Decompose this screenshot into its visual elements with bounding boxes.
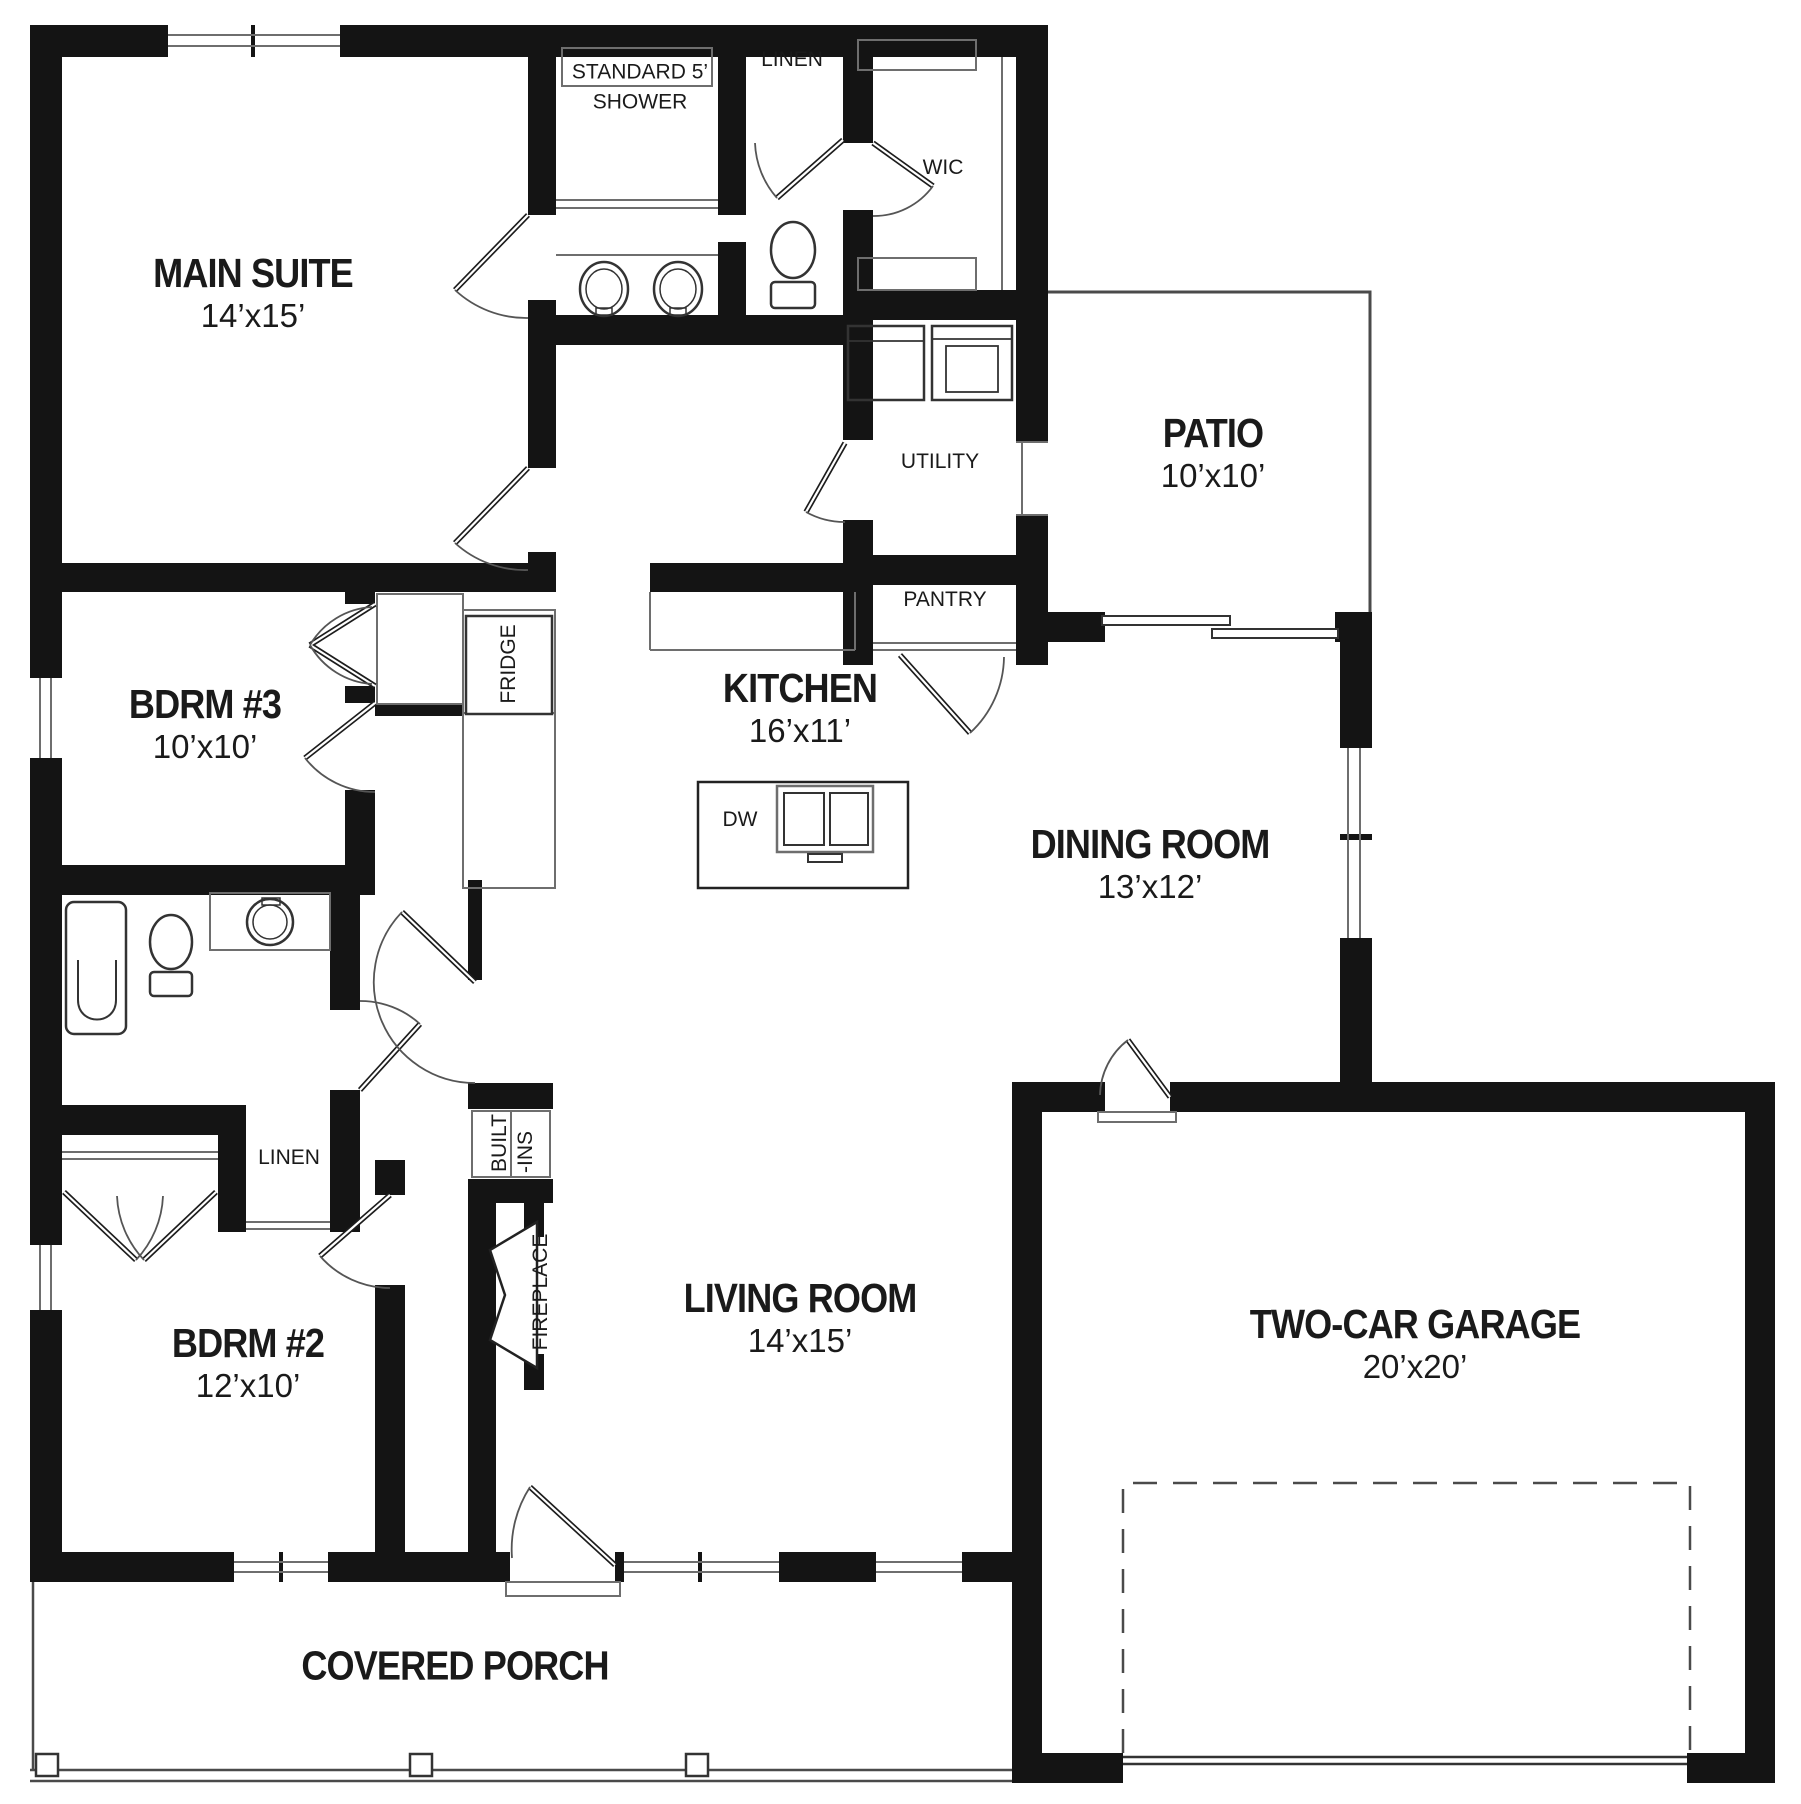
- garage-door-dashed-track: [1123, 1483, 1690, 1753]
- room-title: BDRM #3: [119, 683, 292, 726]
- room-label-garage: TWO-CAR GARAGE 20’x20’: [1227, 1303, 1602, 1389]
- room-label-patio: PATIO 10’x10’: [1156, 412, 1270, 498]
- label-utility: UTILITY: [901, 450, 979, 474]
- room-label-bdrm2: BDRM #2 12’x10’: [162, 1322, 335, 1408]
- floorplan-sheet: MAIN SUITE 14’x15’ BDRM #3 10’x10’ BDRM …: [0, 0, 1801, 1804]
- room-label-main-suite: MAIN SUITE 14’x15’: [140, 252, 367, 338]
- room-label-bdrm3: BDRM #3 10’x10’: [119, 683, 292, 769]
- room-dims: 14’x15’: [140, 295, 367, 338]
- room-label-dining: DINING ROOM 13’x12’: [1014, 823, 1285, 909]
- room-title: KITCHEN: [712, 667, 887, 710]
- room-title: COVERED PORCH: [280, 1645, 629, 1688]
- porch-posts: [36, 1754, 708, 1776]
- room-dims: 10’x10’: [1156, 455, 1270, 498]
- room-title: BDRM #2: [162, 1322, 335, 1365]
- room-title: TWO-CAR GARAGE: [1227, 1303, 1602, 1346]
- label-linen-bdrm: LINEN: [258, 1146, 320, 1170]
- garage-door: [1123, 1757, 1687, 1764]
- room-label-porch: COVERED PORCH: [280, 1645, 629, 1688]
- label-fireplace: FIREPLACE: [529, 1234, 553, 1351]
- front-door-sill: [506, 1582, 620, 1596]
- vanity-fixtures: [556, 255, 718, 316]
- label-shower: STANDARD 5’ SHOWER: [572, 58, 708, 119]
- room-title: PATIO: [1156, 412, 1270, 455]
- kitchen-island: [698, 782, 908, 888]
- label-linen-hall: LINEN: [761, 48, 823, 72]
- room-label-living: LIVING ROOM 14’x15’: [668, 1277, 933, 1363]
- garage-entry-step: [1098, 1112, 1176, 1122]
- label-built: BUILT: [488, 1114, 512, 1172]
- room-title: MAIN SUITE: [140, 252, 367, 295]
- room-dims: 12’x10’: [162, 1365, 335, 1408]
- room-label-kitchen: KITCHEN 16’x11’: [712, 667, 887, 753]
- room-title: DINING ROOM: [1014, 823, 1285, 866]
- toilet-main-bath: [771, 222, 815, 308]
- label-wic: WIC: [923, 156, 964, 180]
- room-dims: 13’x12’: [1014, 866, 1285, 909]
- label-pantry: PANTRY: [903, 588, 986, 612]
- hall-bath-fixtures: [66, 893, 330, 1034]
- room-dims: 10’x10’: [119, 726, 292, 769]
- dishwasher: [777, 786, 873, 862]
- room-dims: 16’x11’: [712, 710, 887, 753]
- patio-slider: [1102, 616, 1338, 638]
- label-ins: -INS: [514, 1131, 538, 1173]
- room-dims: 14’x15’: [668, 1320, 933, 1363]
- room-dims: 20’x20’: [1227, 1346, 1602, 1389]
- room-title: LIVING ROOM: [668, 1277, 933, 1320]
- label-fridge: FRIDGE: [497, 624, 521, 703]
- label-dishwasher: DW: [723, 808, 758, 832]
- pantry-shelves: [873, 643, 1016, 650]
